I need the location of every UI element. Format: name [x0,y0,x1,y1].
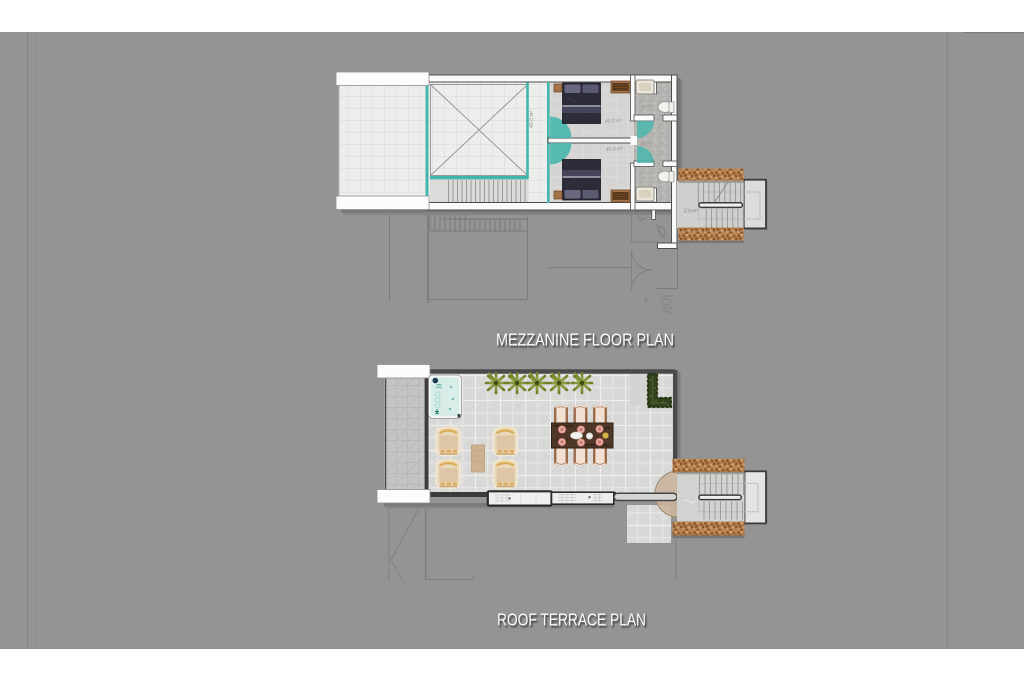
svg-text:4.0m²: 4.0m² [641,103,652,109]
svg-text:40.0 m²: 40.0 m² [606,146,624,153]
svg-text:MEZZANINE FLOOR PLAN: MEZZANINE FLOOR PLAN [496,330,674,350]
svg-text:40.0 m²: 40.0 m² [529,111,535,128]
svg-text:4.0 m²: 4.0 m² [684,208,699,215]
svg-text:4.0m²: 4.0m² [641,140,652,146]
svg-text:40.0 m²: 40.0 m² [605,118,623,125]
svg-text:ROOF TERRACE PLAN: ROOF TERRACE PLAN [497,610,646,630]
